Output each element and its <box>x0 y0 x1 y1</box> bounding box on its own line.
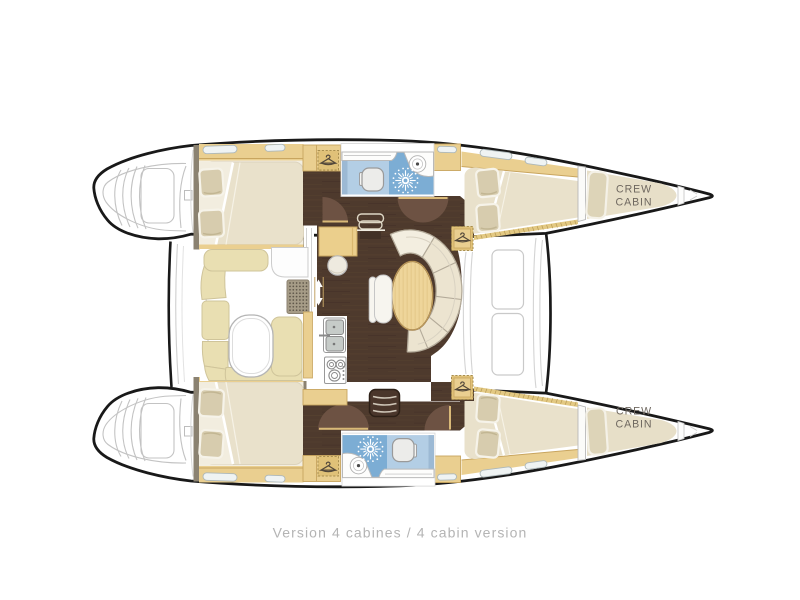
svg-text:CREW: CREW <box>616 184 652 196</box>
svg-text:CREW: CREW <box>616 406 652 418</box>
svg-text:Version 4 cabines / 4 cabin ve: Version 4 cabines / 4 cabin version <box>273 525 528 541</box>
svg-text:CABIN: CABIN <box>616 197 653 209</box>
svg-text:CABIN: CABIN <box>616 419 653 431</box>
